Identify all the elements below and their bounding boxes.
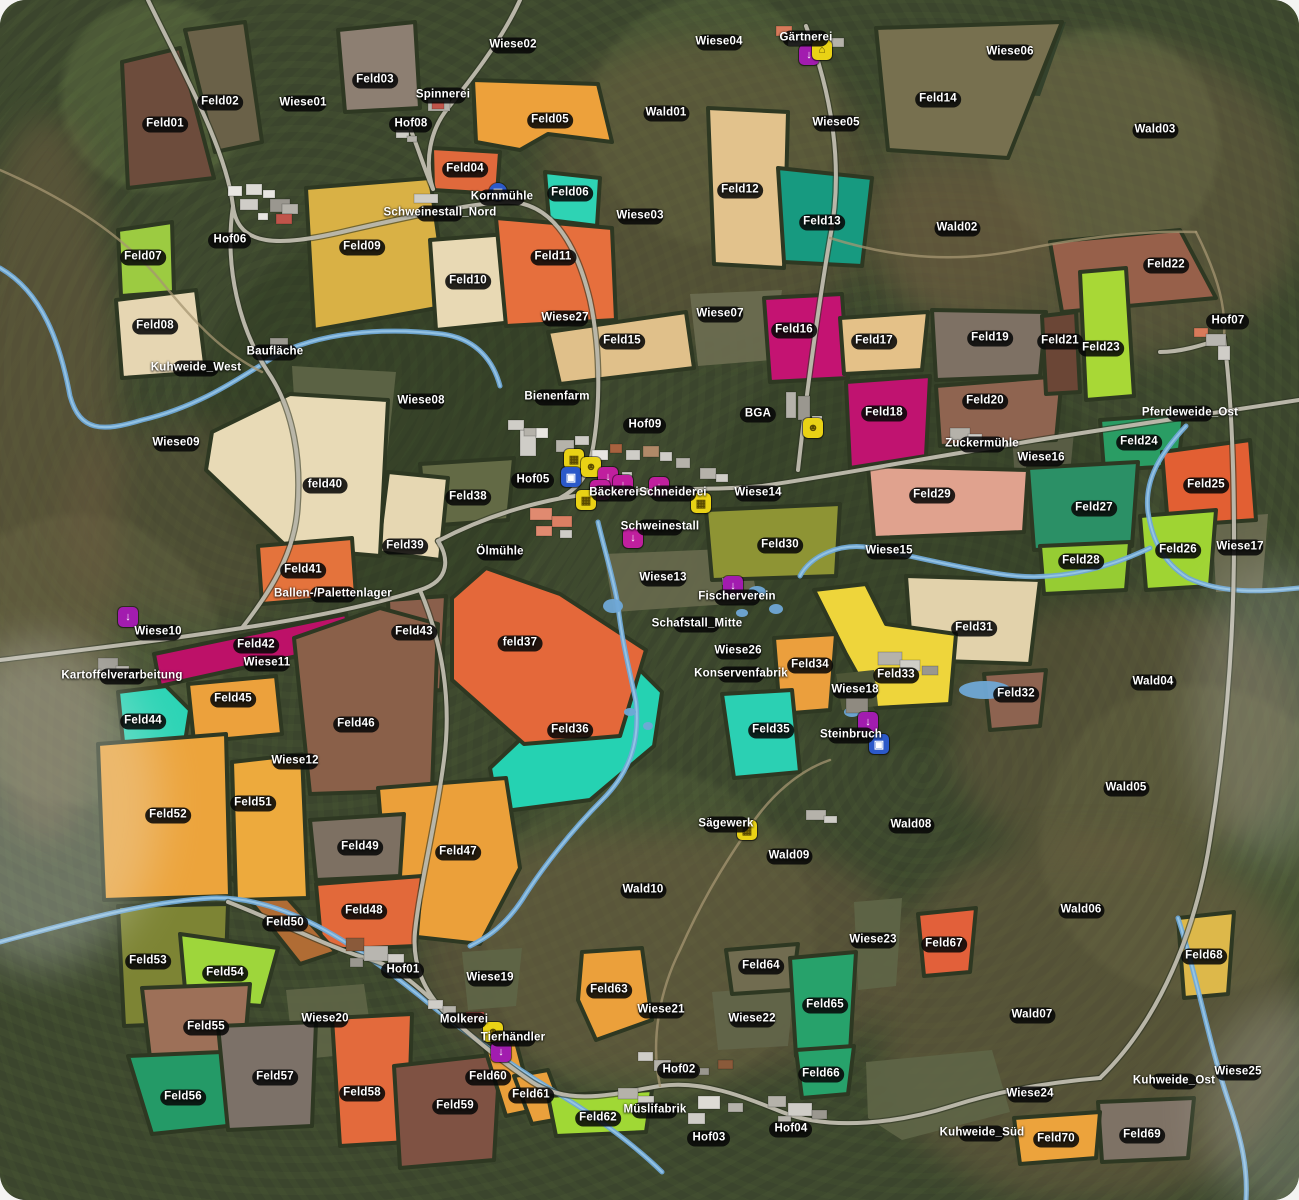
field-label-Feld39: Feld39 [386, 539, 424, 554]
field-label-Feld66: Feld66 [802, 1067, 840, 1082]
field-label-Feld52: Feld52 [149, 808, 187, 823]
farm-label-Hof01: Hof01 [387, 963, 420, 978]
building [716, 474, 728, 482]
field-label-Feld03: Feld03 [356, 73, 394, 88]
field-label-Feld20: Feld20 [966, 394, 1004, 409]
field-label-Feld10: Feld10 [449, 274, 487, 289]
field-label-Feld15: Feld15 [603, 334, 641, 349]
field-label-Feld48: Feld48 [345, 904, 383, 919]
meadow-label-Wiese07: Wiese07 [696, 307, 743, 322]
forest-label-Wald06: Wald06 [1060, 903, 1101, 918]
field-Feld18 [846, 376, 930, 468]
field-Feld21 [1042, 312, 1080, 394]
field-label-Feld51: Feld51 [234, 796, 272, 811]
field-label-Feld42: Feld42 [237, 638, 275, 653]
meadow-label-Wiese01: Wiese01 [279, 96, 326, 111]
field-label-Feld43: Feld43 [395, 625, 433, 640]
field-label-Feld29: Feld29 [913, 488, 951, 503]
place-label-Schneiderei: Schneiderei [639, 486, 706, 501]
field-label-Feld45: Feld45 [214, 692, 252, 707]
field-label-Feld13: Feld13 [803, 215, 841, 230]
meadow-label-Wiese25: Wiese25 [1214, 1065, 1261, 1080]
field-label-Feld50: Feld50 [266, 916, 304, 931]
field-label-Feld16: Feld16 [775, 323, 813, 338]
field-label-Feld36: Feld36 [551, 723, 589, 738]
building [788, 1103, 812, 1116]
meadow-label-Wiese20: Wiese20 [301, 1012, 348, 1027]
building [610, 444, 622, 453]
meadow-label-Wiese04: Wiese04 [695, 35, 742, 50]
field-label-Feld63: Feld63 [590, 983, 628, 998]
field-label-Feld35: Feld35 [752, 723, 790, 738]
field-label-Feld49: Feld49 [341, 840, 379, 855]
building [414, 194, 438, 203]
place-label-Spinnerei: Spinnerei [416, 88, 470, 103]
place-label-Molkerei: Molkerei [440, 1013, 488, 1028]
building [806, 810, 826, 820]
building [246, 184, 262, 195]
farm-label-Hof03: Hof03 [693, 1131, 726, 1146]
field-Feld23 [1080, 268, 1134, 400]
place-label-Bienenfarm: Bienenfarm [524, 390, 589, 405]
building [524, 428, 536, 436]
place-label-Schweinestall_Nord: Schweinestall_Nord [384, 206, 497, 221]
meadow-label-Wiese12: Wiese12 [271, 754, 318, 769]
field-label-Feld47: Feld47 [439, 845, 477, 860]
place-label-Ballen-/Palettenlager: Ballen-/Palettenlager [274, 587, 392, 602]
building [508, 420, 524, 430]
field-label-Feld46: Feld46 [337, 717, 375, 732]
place-label-Kornmühle: Kornmühle [471, 190, 534, 205]
place-label-Kartoffelverarbeitung: Kartoffelverarbeitung [61, 669, 182, 684]
place-label-Sägewerk: Sägewerk [698, 817, 753, 832]
field-label-Feld02: Feld02 [201, 95, 239, 110]
meadow-label-Wiese19: Wiese19 [466, 971, 513, 986]
meadow-label-Wiese11: Wiese11 [244, 656, 291, 671]
building [552, 516, 572, 527]
building [786, 392, 796, 418]
building [922, 666, 938, 675]
field-label-Feld11: Feld11 [535, 250, 572, 265]
meadow-label-Wiese06: Wiese06 [986, 45, 1033, 60]
building [263, 190, 275, 198]
building [846, 698, 868, 713]
field-label-Feld61: Feld61 [512, 1088, 550, 1103]
meadow-label-Wiese22: Wiese22 [728, 1012, 775, 1027]
farm-label-Hof05: Hof05 [517, 473, 550, 488]
building [428, 1000, 443, 1009]
field-label-Feld32: Feld32 [997, 687, 1035, 702]
field-Feld22 [1050, 230, 1216, 312]
field-label-Feld57: Feld57 [256, 1070, 294, 1085]
building [643, 446, 659, 457]
field-label-Feld30: Feld30 [761, 538, 799, 553]
field-label-Feld58: Feld58 [343, 1086, 381, 1101]
field-label-Feld55: Feld55 [187, 1020, 225, 1035]
building [618, 1088, 638, 1099]
field-label-Feld17: Feld17 [855, 334, 893, 349]
field-label-Feld54: Feld54 [206, 966, 244, 981]
meadow-label-Wiese03: Wiese03 [616, 209, 663, 224]
place-label-Zuckermühle: Zuckermühle [945, 437, 1019, 452]
field-label-Feld69: Feld69 [1123, 1128, 1161, 1143]
building [432, 102, 444, 109]
farm-label-Hof06: Hof06 [214, 233, 247, 248]
field-label-Feld25: Feld25 [1187, 478, 1225, 493]
field-label-feld40: feld40 [308, 478, 342, 493]
forest-label-Wald08: Wald08 [890, 818, 931, 833]
building [560, 530, 572, 538]
meadow-label-Wiese23: Wiese23 [849, 933, 896, 948]
forest-label-Wald09: Wald09 [768, 849, 809, 864]
field-label-Feld24: Feld24 [1120, 435, 1158, 450]
meadow-label-Wiese13: Wiese13 [639, 571, 686, 586]
building [276, 214, 292, 224]
meadow-label-Wiese18: Wiese18 [831, 683, 878, 698]
place-label-Steinbruch: Steinbruch [820, 728, 882, 743]
meadow-label-Wiese16: Wiese16 [1017, 451, 1064, 466]
place-label-BGA: BGA [745, 407, 771, 422]
field-label-Feld68: Feld68 [1185, 949, 1223, 964]
vehicle-shop-icon: ▣ [561, 467, 581, 487]
building [728, 1103, 743, 1112]
meadow-label-Wiese26: Wiese26 [714, 644, 761, 659]
field-label-Feld31: Feld31 [955, 621, 993, 636]
field-label-Feld59: Feld59 [436, 1099, 474, 1114]
building [688, 1113, 705, 1124]
building [258, 213, 268, 220]
building [536, 428, 548, 438]
place-label-Schweinestall: Schweinestall [621, 520, 700, 535]
field-label-Feld70: Feld70 [1037, 1132, 1075, 1147]
field-label-Feld38: Feld38 [449, 490, 487, 505]
building [626, 450, 640, 460]
forest-label-Wald03: Wald03 [1134, 123, 1175, 138]
meadow-label-Wiese17: Wiese17 [1216, 540, 1263, 555]
field-label-Feld41: Feld41 [284, 563, 322, 578]
meadow-label-Wiese14: Wiese14 [734, 486, 781, 501]
building [660, 452, 672, 461]
building [530, 508, 552, 520]
farm-label-Hof07: Hof07 [1212, 314, 1245, 329]
place-label-Baufläche: Baufläche [247, 345, 304, 360]
forest-label-Wald04: Wald04 [1132, 675, 1173, 690]
field-label-Feld14: Feld14 [919, 92, 957, 107]
building [350, 958, 363, 967]
field-label-Feld19: Feld19 [971, 331, 1009, 346]
field-label-Feld18: Feld18 [865, 406, 903, 421]
field-label-Feld64: Feld64 [742, 959, 780, 974]
bga-worker-icon: ☻ [803, 418, 823, 438]
building [364, 946, 388, 961]
forest-label-Wald07: Wald07 [1011, 1008, 1052, 1023]
building [228, 186, 242, 196]
place-label-Schafstall_Mitte: Schafstall_Mitte [652, 617, 743, 632]
field-label-Feld12: Feld12 [721, 183, 759, 198]
building [698, 1096, 720, 1109]
farm-label-Hof04: Hof04 [775, 1122, 808, 1137]
forest-label-Wald05: Wald05 [1105, 781, 1146, 796]
place-label-Gärtnerei: Gärtnerei [780, 31, 833, 46]
place-label-Ölmühle: Ölmühle [476, 545, 523, 560]
field-label-Feld34: Feld34 [791, 658, 829, 673]
field-label-Feld23: Feld23 [1082, 341, 1120, 356]
building [407, 136, 417, 142]
field-label-Feld44: Feld44 [124, 714, 162, 729]
pond [769, 604, 783, 614]
building [700, 468, 716, 479]
forest-label-Wald10: Wald10 [622, 883, 663, 898]
field-Feld14 [876, 22, 1062, 158]
pond [603, 599, 623, 613]
field-Feld45 [188, 676, 282, 742]
place-label-Fischerverein: Fischerverein [698, 590, 775, 605]
forest-label-Wald01: Wald01 [645, 106, 686, 121]
field-label-Feld21: Feld21 [1041, 334, 1079, 349]
field-label-Feld05: Feld05 [531, 113, 569, 128]
field-Feld51 [232, 754, 308, 900]
farm-label-Hof09: Hof09 [629, 418, 662, 433]
meadow-label-Kuhweide_West: Kuhweide_West [151, 361, 242, 376]
field-label-Feld67: Feld67 [925, 937, 963, 952]
building [718, 1060, 733, 1069]
field-label-Feld56: Feld56 [164, 1090, 202, 1105]
building [878, 652, 902, 665]
building [812, 1110, 827, 1119]
building [676, 458, 690, 468]
pond [624, 708, 636, 716]
meadow-label-Pferdeweide_Ost: Pferdeweide_Ost [1142, 406, 1238, 421]
building [798, 396, 810, 420]
meadow-label-Wiese10: Wiese10 [134, 625, 181, 640]
meadow-label-Wiese27: Wiese27 [541, 311, 588, 326]
meadow-label-Wiese02: Wiese02 [489, 38, 536, 53]
field-label-Feld06: Feld06 [551, 186, 589, 201]
place-label-Müslifabrik: Müslifabrik [624, 1103, 687, 1118]
field-Feld03 [338, 22, 420, 112]
place-label-Bäckerei: Bäckerei [589, 486, 639, 501]
building [824, 816, 837, 823]
field-label-Feld07: Feld07 [124, 250, 162, 265]
field-label-Feld62: Feld62 [579, 1111, 617, 1126]
building [768, 1096, 786, 1107]
meadow-label-Wiese15: Wiese15 [865, 544, 912, 559]
meadow-label-Wiese21: Wiese21 [637, 1003, 684, 1018]
field-label-Feld04: Feld04 [446, 162, 484, 177]
meadow-label-Kuhweide_Ost: Kuhweide_Ost [1133, 1074, 1215, 1089]
building [346, 938, 364, 951]
field-label-Feld01: Feld01 [146, 117, 184, 132]
building [1218, 346, 1230, 360]
meadow-label-Wiese09: Wiese09 [152, 436, 199, 451]
forest-label-Wald02: Wald02 [936, 221, 977, 236]
field-label-Feld33: Feld33 [877, 668, 915, 683]
field-label-Feld65: Feld65 [806, 998, 844, 1013]
meadow-label-Wiese08: Wiese08 [397, 394, 444, 409]
pond [643, 722, 653, 730]
field-label-feld37: feld37 [503, 636, 537, 651]
building [282, 204, 298, 214]
building [1206, 334, 1226, 346]
field-Feld16 [764, 294, 848, 382]
field-label-Feld27: Feld27 [1075, 501, 1113, 516]
farm-label-Hof08: Hof08 [395, 117, 428, 132]
place-label-Konservenfabrik: Konservenfabrik [694, 667, 788, 682]
field-label-Feld53: Feld53 [129, 954, 167, 969]
building [240, 199, 258, 210]
field-label-Feld08: Feld08 [136, 319, 174, 334]
building [575, 436, 589, 445]
meadow-label-Wiese05: Wiese05 [812, 116, 859, 131]
field-label-Feld26: Feld26 [1159, 543, 1197, 558]
meadow-label-Wiese24: Wiese24 [1006, 1087, 1053, 1102]
farm-label-Hof02: Hof02 [663, 1063, 696, 1078]
building [536, 526, 552, 536]
farm-map[interactable]: Feld01Feld02Feld03Feld04Feld05Feld06Feld… [0, 0, 1299, 1200]
place-label-Tierhändler: Tierhändler [481, 1031, 546, 1046]
field-label-Feld28: Feld28 [1062, 554, 1100, 569]
field-label-Feld60: Feld60 [469, 1070, 507, 1085]
field-label-Feld09: Feld09 [343, 240, 381, 255]
building [638, 1052, 653, 1061]
field-label-Feld22: Feld22 [1147, 258, 1185, 273]
meadow-label-Kuhweide_Süd: Kuhweide_Süd [940, 1126, 1025, 1141]
